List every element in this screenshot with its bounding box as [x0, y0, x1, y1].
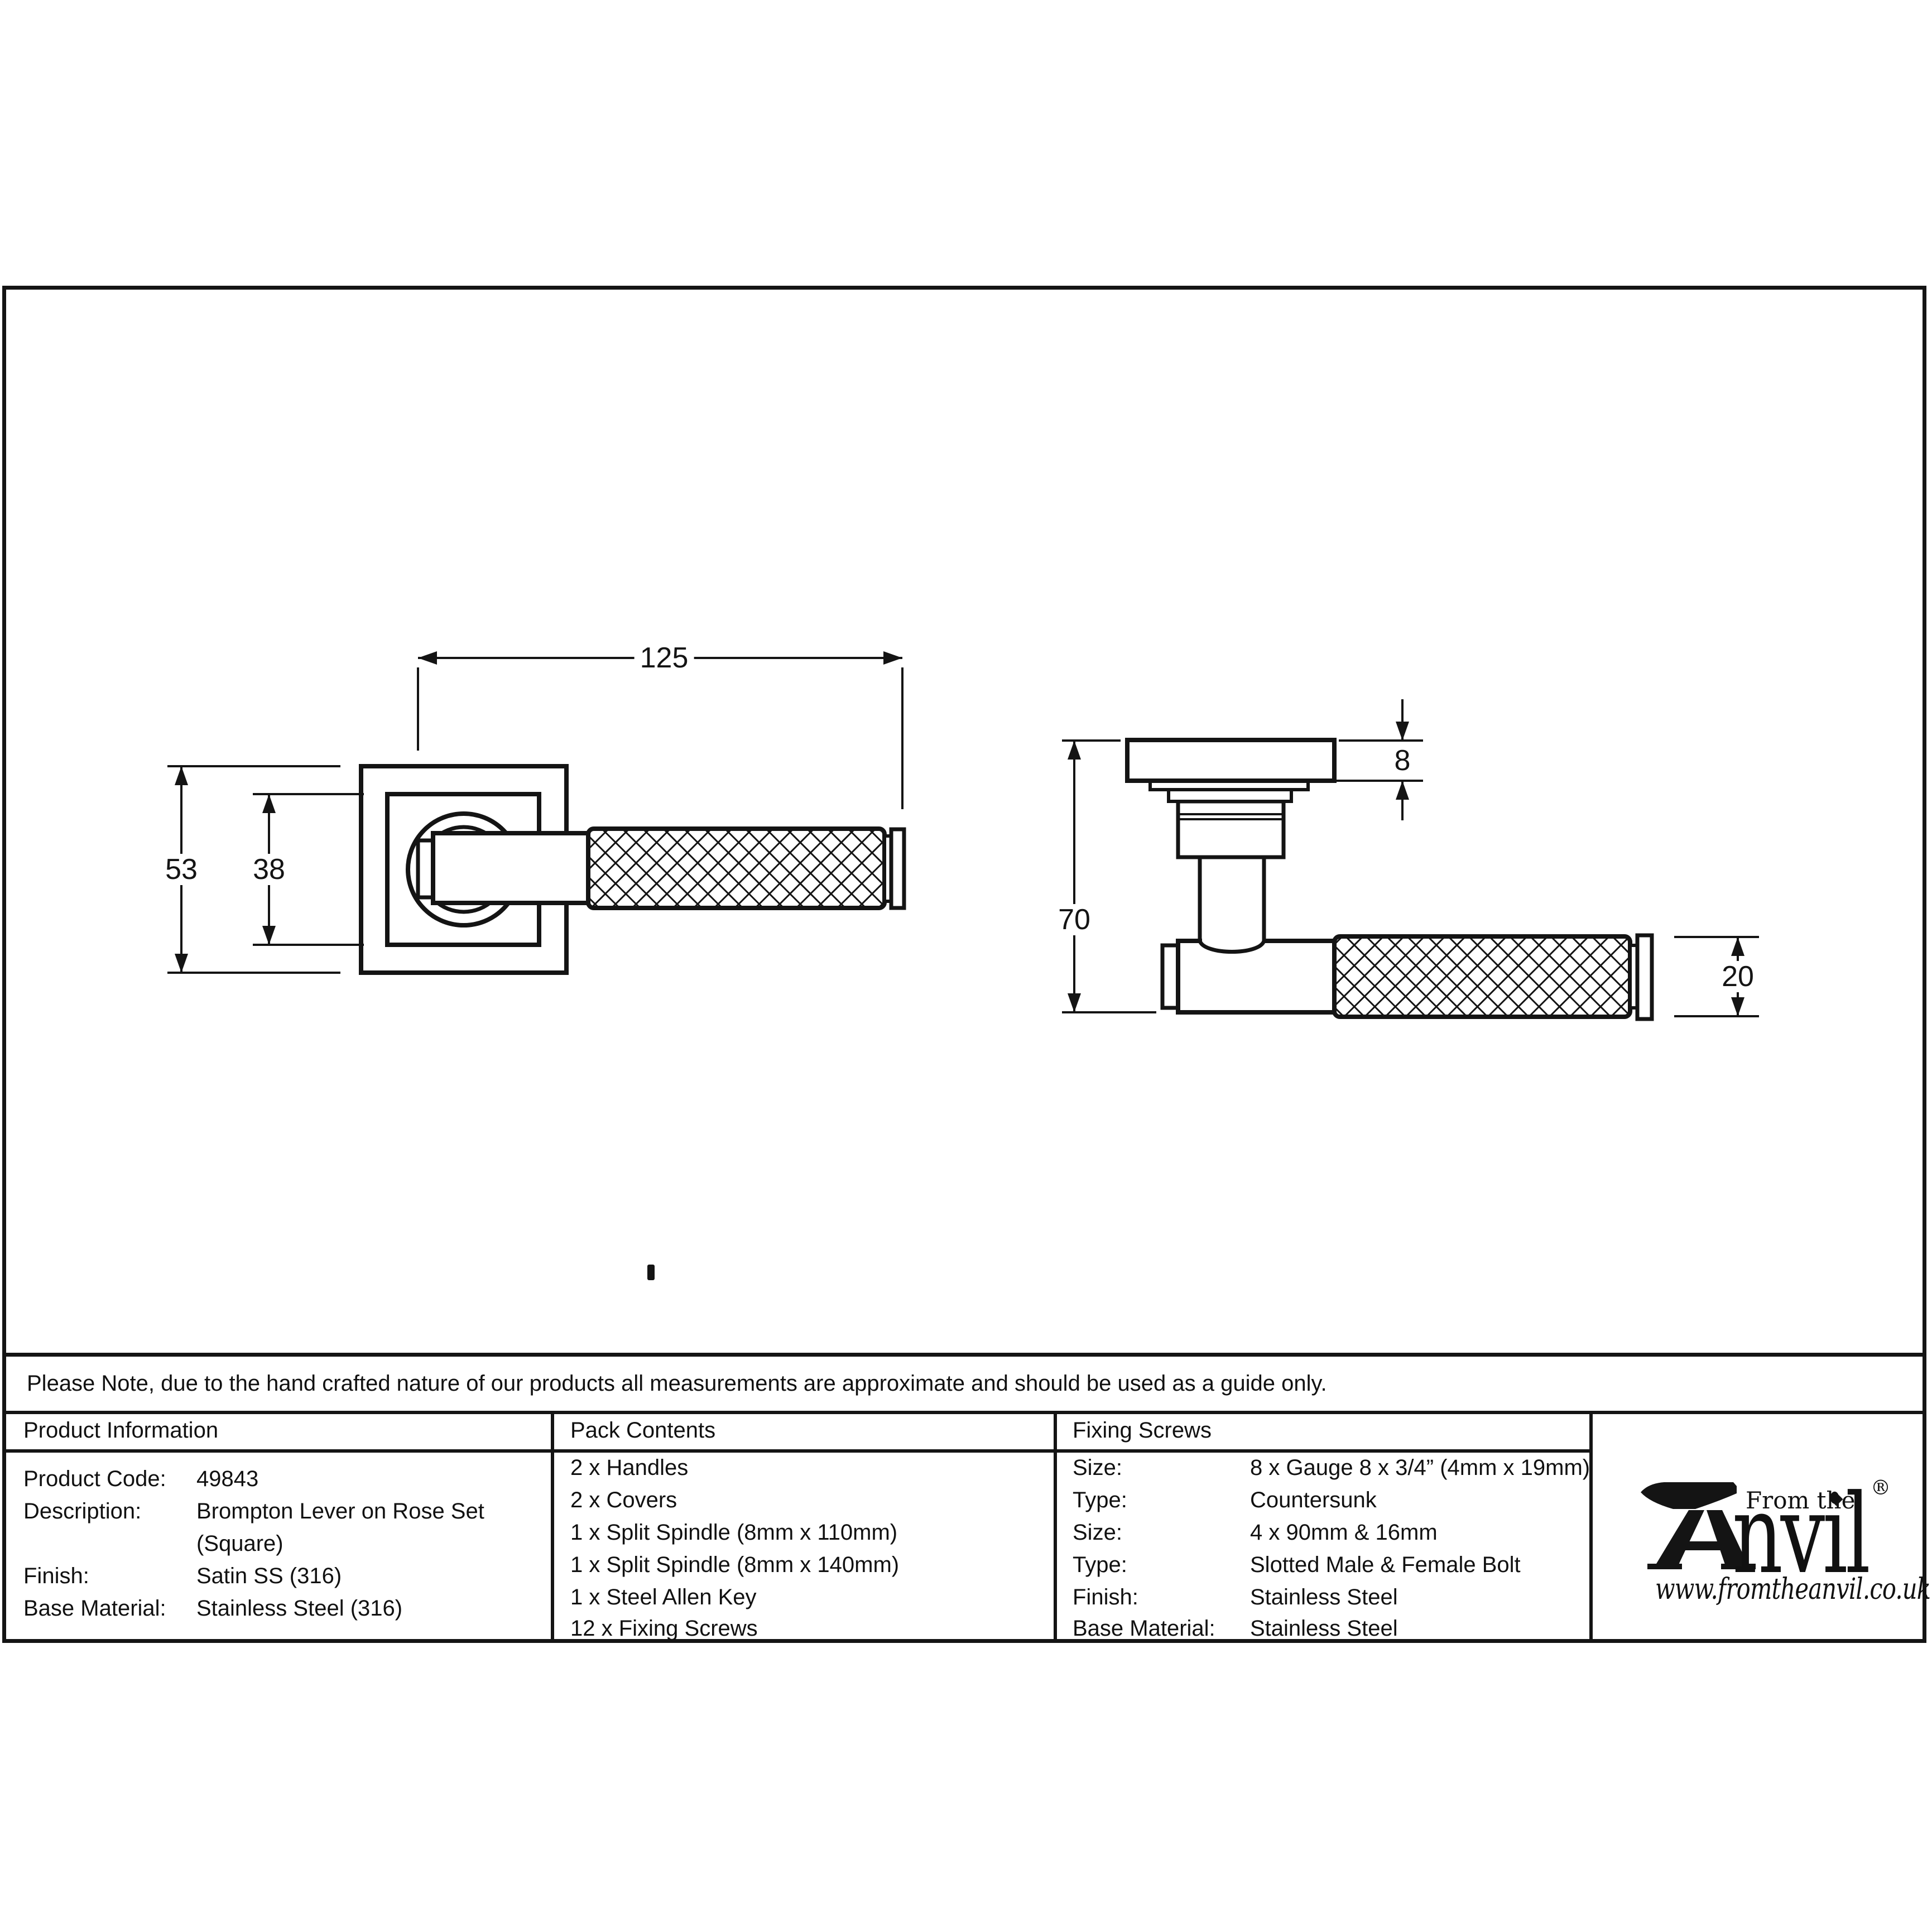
pack-item-5: 12 x Fixing Screws [570, 1617, 758, 1640]
pi-value-2: (Square) [196, 1532, 283, 1555]
pack-item-4: 1 x Steel Allen Key [570, 1586, 757, 1608]
fs-value-5: Stainless Steel [1250, 1617, 1398, 1640]
pi-value-0: 49843 [196, 1468, 258, 1490]
table-divider-2 [1054, 1411, 1057, 1639]
table-divider-3 [1589, 1411, 1593, 1639]
fs-label-2: Size: [1073, 1521, 1122, 1544]
registered-trademark-icon: ® [1871, 1477, 1891, 1500]
pi-value-4: Stainless Steel (316) [196, 1597, 402, 1619]
logo-website-text: www.fromtheanvil.co.uk [1655, 1573, 1930, 1606]
fs-value-0: 8 x Gauge 8 x 3/4” (4mm x 19mm) [1250, 1457, 1590, 1479]
spec-sheet-page: 125 53 38 70 8 20 Please Note, due to th… [0, 0, 1932, 1932]
pi-value-3: Satin SS (316) [196, 1565, 342, 1587]
pi-label-4: Base Material: [23, 1597, 166, 1619]
pack-item-0: 2 x Handles [570, 1457, 688, 1479]
note-text: Please Note, due to the hand crafted nat… [27, 1372, 1327, 1395]
header-pack-contents: Pack Contents [570, 1419, 715, 1441]
fs-label-4: Finish: [1073, 1586, 1138, 1608]
header-product-information: Product Information [23, 1419, 218, 1441]
pi-label-0: Product Code: [23, 1468, 166, 1490]
pack-item-3: 1 x Split Spindle (8mm x 140mm) [570, 1554, 899, 1576]
pack-item-2: 1 x Split Spindle (8mm x 110mm) [570, 1521, 897, 1544]
fs-label-5: Base Material: [1073, 1617, 1215, 1640]
fs-value-4: Stainless Steel [1250, 1586, 1398, 1608]
sheet-border [2, 286, 1926, 1643]
fs-label-1: Type: [1073, 1489, 1127, 1511]
fs-label-3: Type: [1073, 1554, 1127, 1576]
table-header-underline [6, 1449, 1589, 1453]
fs-value-2: 4 x 90mm & 16mm [1250, 1521, 1438, 1544]
pi-label-3: Finish: [23, 1565, 89, 1587]
pi-label-1: Description: [23, 1500, 141, 1522]
table-divider-1 [551, 1411, 554, 1639]
fs-value-3: Slotted Male & Female Bolt [1250, 1554, 1521, 1576]
header-fixing-screws: Fixing Screws [1073, 1419, 1212, 1441]
fs-value-1: Countersunk [1250, 1489, 1377, 1511]
fs-label-0: Size: [1073, 1457, 1122, 1479]
pi-value-1: Brompton Lever on Rose Set [196, 1500, 484, 1522]
pack-item-1: 2 x Covers [570, 1489, 677, 1511]
